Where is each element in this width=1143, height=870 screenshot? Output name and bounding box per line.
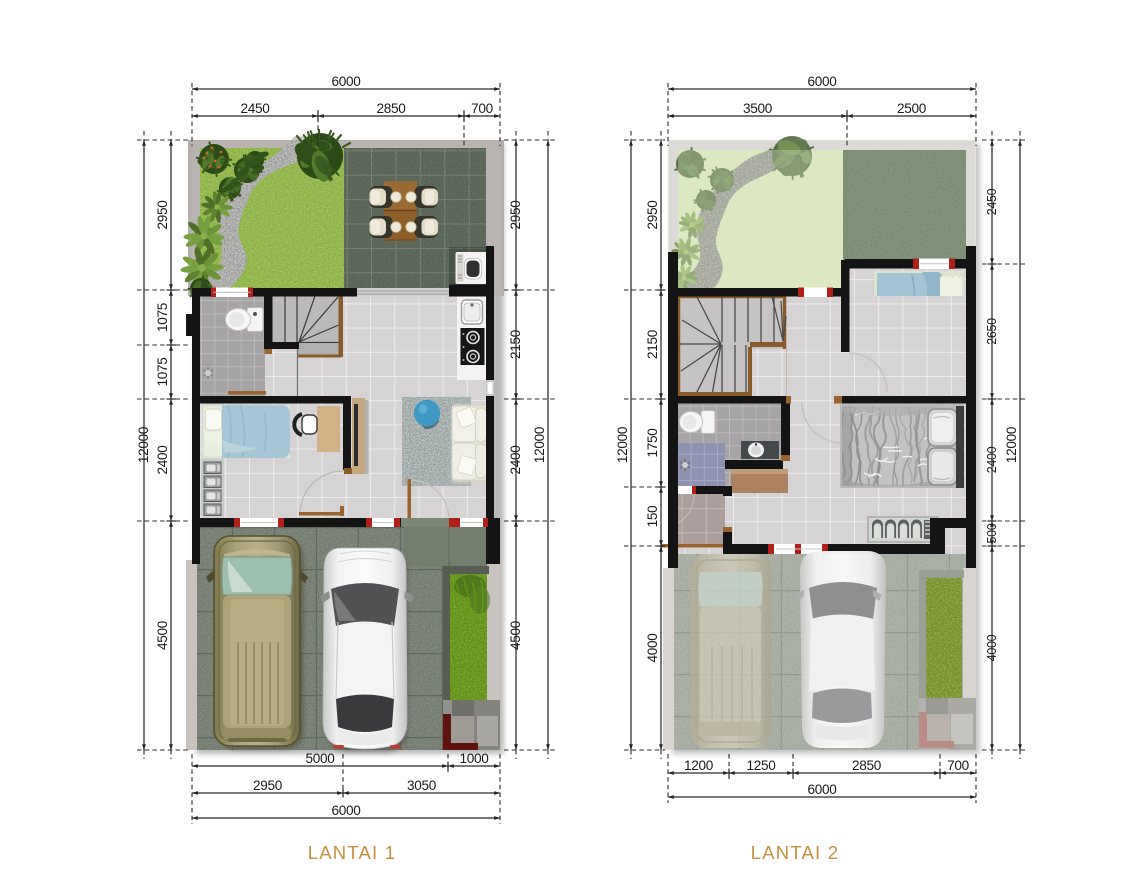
svg-text:6000: 6000 <box>807 74 837 89</box>
svg-text:12000: 12000 <box>532 426 547 463</box>
svg-text:5000: 5000 <box>305 751 335 766</box>
svg-text:2400: 2400 <box>985 446 999 473</box>
svg-text:4000: 4000 <box>985 634 999 661</box>
svg-text:6000: 6000 <box>331 803 361 818</box>
svg-text:1075: 1075 <box>155 357 170 386</box>
svg-text:700: 700 <box>947 758 970 773</box>
svg-text:4500: 4500 <box>155 620 170 650</box>
svg-text:1250: 1250 <box>746 758 776 773</box>
svg-text:2650: 2650 <box>985 318 999 345</box>
svg-text:LANTAI 1: LANTAI 1 <box>308 842 396 863</box>
svg-text:1200: 1200 <box>684 758 714 773</box>
svg-text:4500: 4500 <box>508 620 523 650</box>
svg-text:2850: 2850 <box>852 758 882 773</box>
svg-text:2400: 2400 <box>508 445 523 475</box>
svg-text:2450: 2450 <box>240 101 270 116</box>
svg-text:6000: 6000 <box>331 74 361 89</box>
svg-text:2850: 2850 <box>376 101 406 116</box>
svg-text:700: 700 <box>471 101 494 116</box>
svg-text:2150: 2150 <box>508 329 523 359</box>
svg-text:3500: 3500 <box>743 101 773 116</box>
svg-text:2400: 2400 <box>155 445 170 475</box>
svg-text:12000: 12000 <box>136 426 151 463</box>
svg-text:2950: 2950 <box>253 778 283 793</box>
svg-text:1750: 1750 <box>645 428 660 458</box>
svg-text:4000: 4000 <box>645 633 660 663</box>
svg-text:2500: 2500 <box>897 101 927 116</box>
svg-text:LANTAI 2: LANTAI 2 <box>751 842 839 863</box>
svg-text:6000: 6000 <box>807 782 837 797</box>
svg-text:1000: 1000 <box>459 751 489 766</box>
svg-text:12000: 12000 <box>615 426 630 463</box>
svg-text:500: 500 <box>985 523 999 543</box>
svg-text:150: 150 <box>645 505 660 528</box>
svg-text:2950: 2950 <box>155 200 170 230</box>
svg-text:2950: 2950 <box>645 200 660 230</box>
svg-text:2150: 2150 <box>645 329 660 359</box>
svg-text:2950: 2950 <box>508 200 523 230</box>
svg-text:1075: 1075 <box>155 303 170 332</box>
svg-text:12000: 12000 <box>1004 426 1019 463</box>
svg-text:2450: 2450 <box>985 188 999 215</box>
svg-text:3050: 3050 <box>407 778 437 793</box>
